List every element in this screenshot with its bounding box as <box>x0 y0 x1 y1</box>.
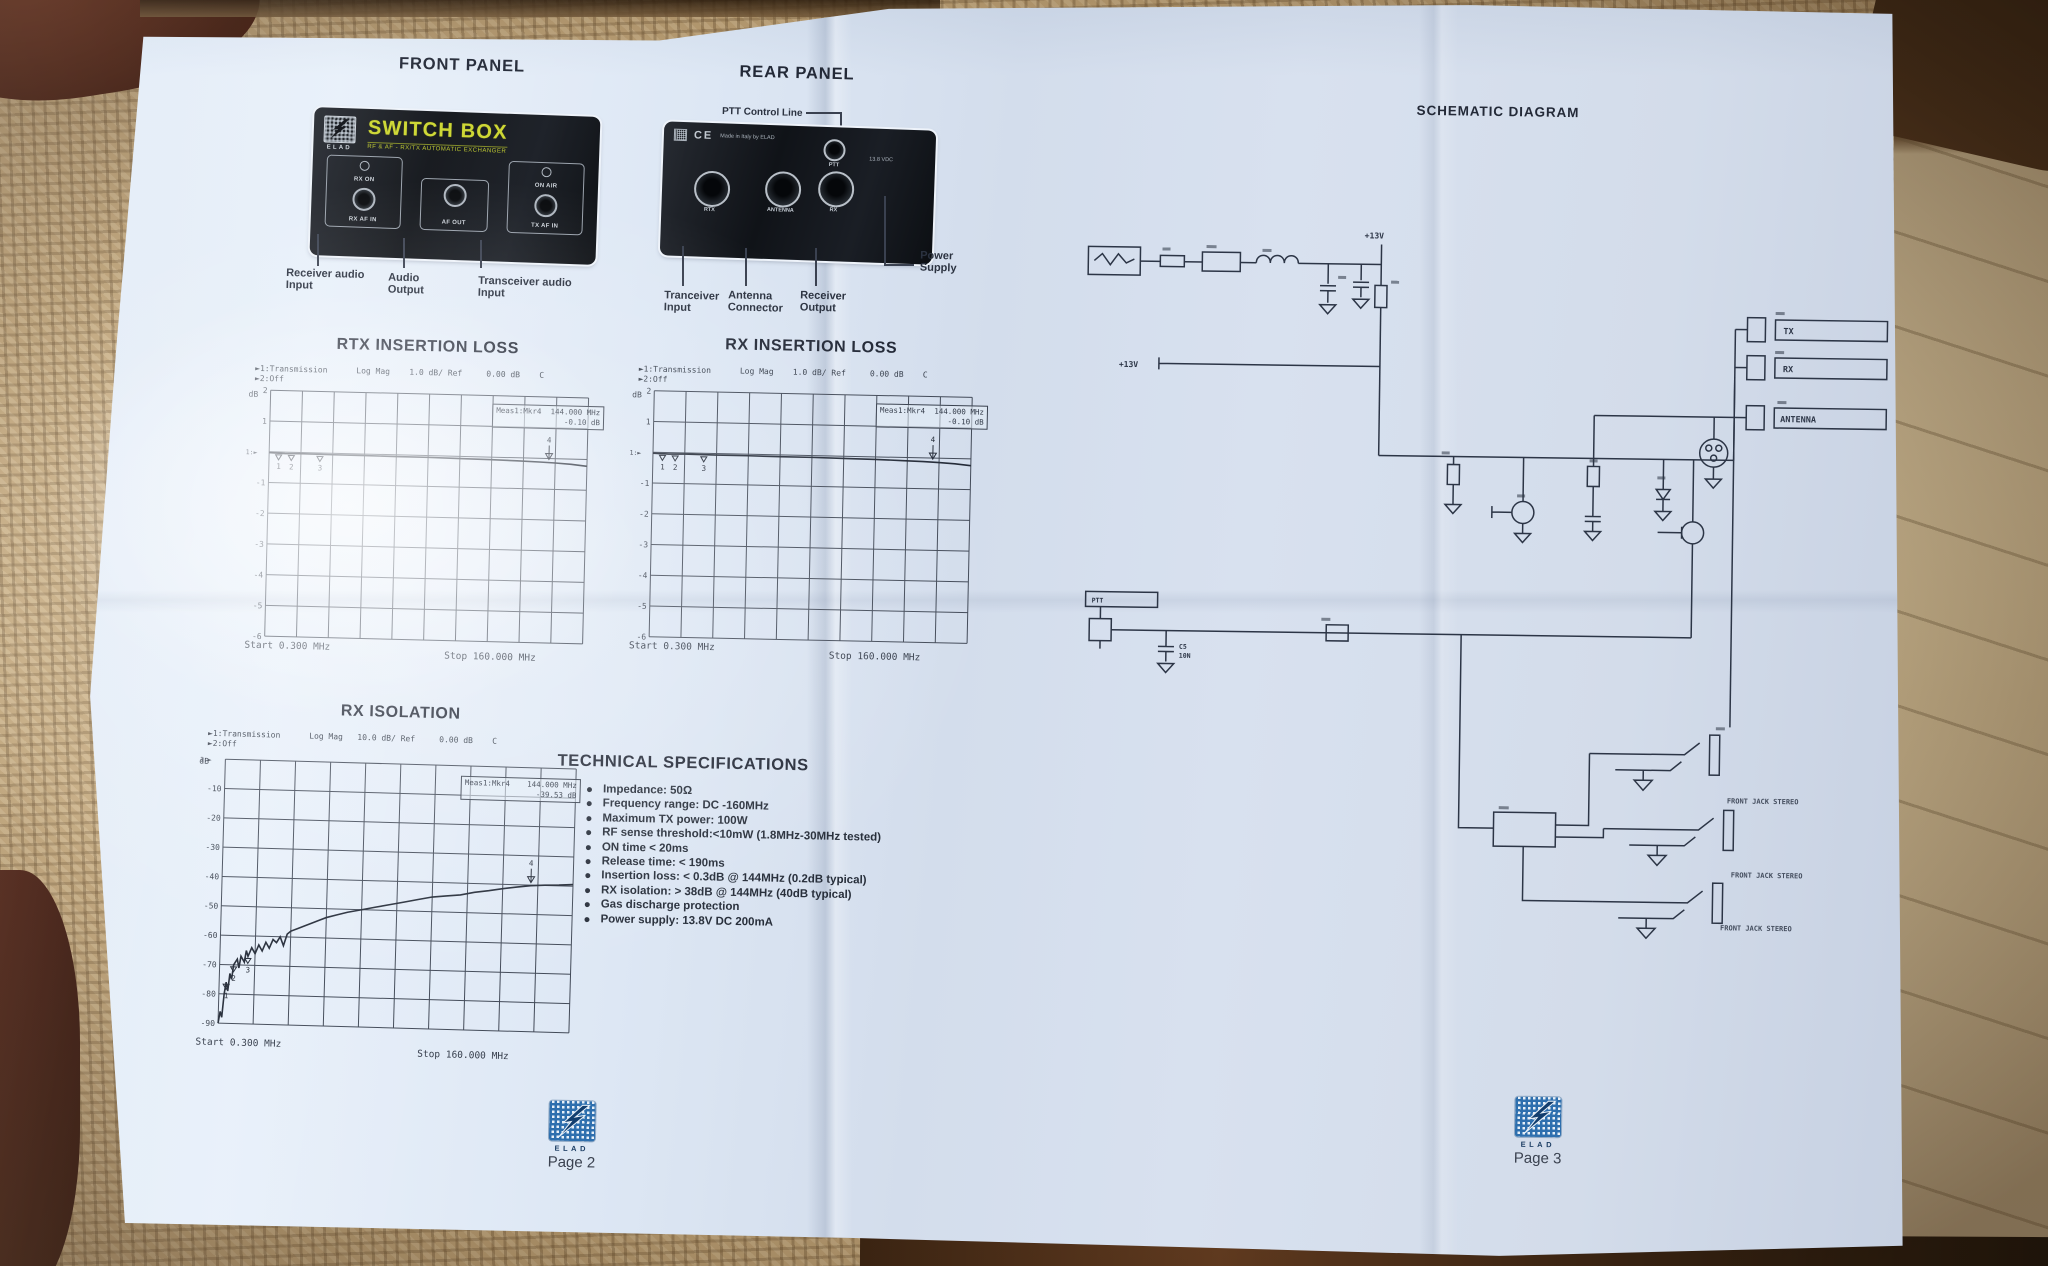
svg-text:1: 1 <box>224 991 229 1000</box>
ptt-section <box>1085 451 1705 680</box>
front-panel-jack-row: RX ON RX AF IN AF OUT ON AIR TX AF IN <box>310 152 599 245</box>
svg-text:1:►: 1:► <box>629 449 641 457</box>
page-number: Page 3 <box>1478 1149 1598 1168</box>
bullet-icon <box>585 888 590 893</box>
jack1-label: FRONT JACK STEREO <box>1727 797 1799 806</box>
chart-header-line1: ►1:Transmission Log Mag 1.0 dB/ Ref 0.00… <box>255 364 544 380</box>
sweep-stop-label: Stop 160.000 MHz <box>444 651 536 664</box>
tx-connector-label: TX <box>1783 327 1793 337</box>
bullet-icon <box>586 845 591 850</box>
svg-text:1: 1 <box>660 462 665 471</box>
rx-on-led-icon <box>359 161 369 171</box>
specs-heading: TECHNICAL SPECIFICATIONS <box>557 752 1027 780</box>
rail-13v-label: +13V <box>1365 231 1385 240</box>
bullet-icon <box>586 859 591 864</box>
svg-text:1:►: 1:► <box>200 755 212 763</box>
svg-text:-70: -70 <box>202 960 217 969</box>
schematic-diagram: +13V +13V <box>1067 206 1907 943</box>
af-out-jack-icon <box>443 184 467 208</box>
af-out-jack-group: AF OUT <box>419 178 489 232</box>
callout-audio-output: Audio Output <box>388 272 425 298</box>
bullet-icon <box>587 801 592 806</box>
supply-rating-label: 13.8 VDC <box>869 156 893 163</box>
rtx-insertion-loss-chart: RTX INSERTION LOSS ►1:Transmission Log M… <box>240 332 608 673</box>
rtx-connector-label: RTX <box>687 206 731 214</box>
bias-network <box>1377 412 1734 545</box>
stereo-jack-symbol <box>1589 733 1720 791</box>
product-name: SWITCH BOX <box>368 117 508 145</box>
ptt-control-line-label: PTT Control Line <box>722 106 803 119</box>
svg-text:2: 2 <box>673 463 678 472</box>
photo-scene: FRONT PANEL ELAD SWITCH BOX RF & AF - RX… <box>0 0 2048 1266</box>
rtx-connector-icon <box>693 170 730 207</box>
rx-connector-label: RX <box>811 206 855 214</box>
callout-power-supply: Power Supply <box>920 250 957 276</box>
callout-antenna-connector: Antenna Connector <box>728 289 784 315</box>
callout-line <box>403 238 405 268</box>
elad-logo-icon <box>548 1100 597 1143</box>
svg-text:-3: -3 <box>638 540 648 549</box>
elad-brand-label: ELAD <box>327 145 352 152</box>
ptt-label: PTT <box>1092 596 1104 604</box>
rx-on-label: RX ON <box>354 176 375 183</box>
callout-line <box>317 234 319 266</box>
technical-specifications: TECHNICAL SPECIFICATIONS Impedance: 50Ω … <box>554 752 1027 936</box>
product-title-block: SWITCH BOX RF & AF - RX/TX AUTOMATIC EXC… <box>367 117 508 155</box>
chart-title: RX INSERTION LOSS <box>631 334 991 360</box>
chart-header-line1: ►1:Transmission Log Mag 10.0 dB/ Ref 0.0… <box>208 729 497 746</box>
svg-text:-40: -40 <box>205 872 220 881</box>
callout-transceiver-input: Tranceiver Input <box>664 289 720 315</box>
rear-panel-markings: CE Made in Italy by ELAD <box>674 129 775 145</box>
callout-line <box>480 240 482 268</box>
c5-ref-label: C5 <box>1179 643 1187 651</box>
bullet-icon <box>587 787 592 792</box>
rear-panel-heading: REAR PANEL <box>712 62 882 85</box>
front-panel-image: ELAD SWITCH BOX RF & AF - RX/TX AUTOMATI… <box>310 107 601 265</box>
svg-text:-5: -5 <box>253 601 263 610</box>
elad-logo-block: ELAD <box>323 115 356 151</box>
antenna-connector-label: ANTENNA <box>1780 415 1816 425</box>
stereo-jack-symbol <box>1592 882 1723 940</box>
sweep-start-label: Start 0.300 MHz <box>195 1036 281 1049</box>
stereo-jack-symbol <box>1603 809 1734 867</box>
page2-footer: ELAD Page 2 <box>511 1099 632 1172</box>
svg-text:2: 2 <box>646 387 651 396</box>
svg-text:-4: -4 <box>253 570 263 579</box>
manual-content: FRONT PANEL ELAD SWITCH BOX RF & AF - RX… <box>0 0 2048 1266</box>
svg-text:-50: -50 <box>204 901 219 910</box>
chart-title: RTX INSERTION LOSS <box>248 334 608 361</box>
svg-text:-1: -1 <box>640 479 650 488</box>
callout-transceiver-audio-input: Transceiver audio Input <box>478 275 572 302</box>
svg-text:-80: -80 <box>201 989 216 998</box>
elad-brand-label: ELAD <box>1478 1139 1598 1150</box>
callout-receiver-output: Receiver Output <box>800 289 847 315</box>
on-air-label: ON AIR <box>535 182 558 189</box>
svg-text:-3: -3 <box>254 540 264 549</box>
rx-connector-label: RX <box>1783 365 1793 375</box>
callout-receiver-audio-input: Receiver audio Input <box>286 267 365 294</box>
chart-header-line1: ►1:Transmission Log Mag 1.0 dB/ Ref 0.00… <box>639 364 928 379</box>
power-input-section <box>1086 240 1388 455</box>
antenna-connector-icon <box>764 171 801 208</box>
elad-logo-icon <box>1514 1096 1563 1139</box>
callout-line <box>884 264 914 266</box>
svg-text:2: 2 <box>263 386 268 395</box>
front-panel-heading: FRONT PANEL <box>382 54 542 77</box>
callout-line <box>815 248 817 286</box>
rx-connector-icon <box>818 171 855 208</box>
svg-text:-30: -30 <box>205 843 220 852</box>
svg-text:1: 1 <box>276 462 281 471</box>
page3-footer: ELAD Page 3 <box>1478 1095 1599 1168</box>
svg-text:-2: -2 <box>639 509 649 518</box>
callout-line <box>682 246 684 286</box>
rear-panel-image: CE Made in Italy by ELAD PTT 13.8 VDC RT… <box>660 121 937 264</box>
rx-insertion-loss-chart: RX INSERTION LOSS ►1:Transmission Log Ma… <box>625 332 992 671</box>
svg-text:1:►: 1:► <box>246 448 258 456</box>
svg-text:3: 3 <box>318 463 323 472</box>
relay-jack-section <box>1457 635 1736 940</box>
svg-text:-2: -2 <box>255 509 265 518</box>
bullet-icon <box>586 830 591 835</box>
callout-line <box>884 196 886 266</box>
bullet-icon <box>585 873 590 878</box>
specs-list: Impedance: 50Ω Frequency range: DC -160M… <box>584 783 1027 933</box>
svg-text:2: 2 <box>231 974 236 983</box>
svg-text:2: 2 <box>289 462 294 471</box>
sweep-stop-label: Stop 160.000 MHz <box>829 650 921 663</box>
tx-af-in-label: TX AF IN <box>531 223 558 230</box>
svg-text:4: 4 <box>547 435 552 444</box>
antenna-connector-label: ANTENNA <box>758 207 802 215</box>
svg-text:1: 1 <box>262 417 267 426</box>
bullet-icon <box>585 902 590 907</box>
on-air-led-icon <box>541 167 551 177</box>
ptt-connector-label: PTT <box>812 161 856 169</box>
svg-text:3: 3 <box>701 464 706 473</box>
jack2-label: FRONT JACK STEREO <box>1731 871 1803 880</box>
jack3-label: FRONT JACK STEREO <box>1720 924 1792 933</box>
tx-jack-group: ON AIR TX AF IN <box>506 161 584 236</box>
rx-af-in-label: RX AF IN <box>349 216 377 223</box>
ptt-connector-icon <box>823 139 846 162</box>
af-out-label: AF OUT <box>442 220 466 227</box>
svg-text:3: 3 <box>245 965 250 974</box>
page-number: Page 2 <box>511 1153 631 1173</box>
c5-value-label: 10N <box>1179 652 1191 660</box>
rail-feed-line <box>1159 357 1380 372</box>
svg-text:-4: -4 <box>638 571 648 580</box>
elad-lightning-logo-icon <box>323 115 356 143</box>
marker-readout-box: Meas1:Mkr4 144.000 MHz -0.10 dB <box>876 403 988 430</box>
sweep-start-label: Start 0.300 MHz <box>244 640 330 653</box>
sweep-stop-label: Stop 160.000 MHz <box>417 1049 509 1063</box>
svg-text:-90: -90 <box>200 1019 215 1028</box>
chart-header-line2: ►2:Off <box>208 739 237 749</box>
svg-text:-1: -1 <box>256 478 266 487</box>
svg-text:4: 4 <box>529 859 534 868</box>
sweep-start-label: Start 0.300 MHz <box>629 640 715 653</box>
chart-title: RX ISOLATION <box>201 698 601 727</box>
rx-af-in-jack-icon <box>352 188 376 212</box>
rail-13v-label-2: +13V <box>1119 360 1139 369</box>
io-connectors <box>1590 315 1888 729</box>
schematic-heading: SCHEMATIC DIAGRAM <box>1398 103 1598 121</box>
elad-mini-logo-icon <box>674 129 687 141</box>
svg-text:-20: -20 <box>206 813 221 822</box>
rx-jack-group: RX ON RX AF IN <box>325 155 403 230</box>
tx-af-in-jack-icon <box>533 194 557 218</box>
marker-readout-box: Meas1:Mkr4 144.000 MHz -0.10 dB <box>492 404 605 431</box>
ce-mark: CE <box>694 129 714 142</box>
made-in-label: Made in Italy by ELAD <box>720 133 775 141</box>
svg-text:-10: -10 <box>207 784 222 793</box>
component-designators <box>1155 244 1789 813</box>
bullet-icon <box>584 917 589 922</box>
bullet-icon <box>586 816 591 821</box>
svg-text:-5: -5 <box>637 602 647 611</box>
rx-isolation-chart: RX ISOLATION ►1:Transmission Log Mag 10.… <box>191 694 601 1071</box>
svg-text:4: 4 <box>931 435 936 444</box>
ptt-callout-line <box>806 112 842 114</box>
svg-text:-60: -60 <box>203 931 218 940</box>
svg-text:1: 1 <box>646 417 651 426</box>
callout-line <box>745 248 747 286</box>
